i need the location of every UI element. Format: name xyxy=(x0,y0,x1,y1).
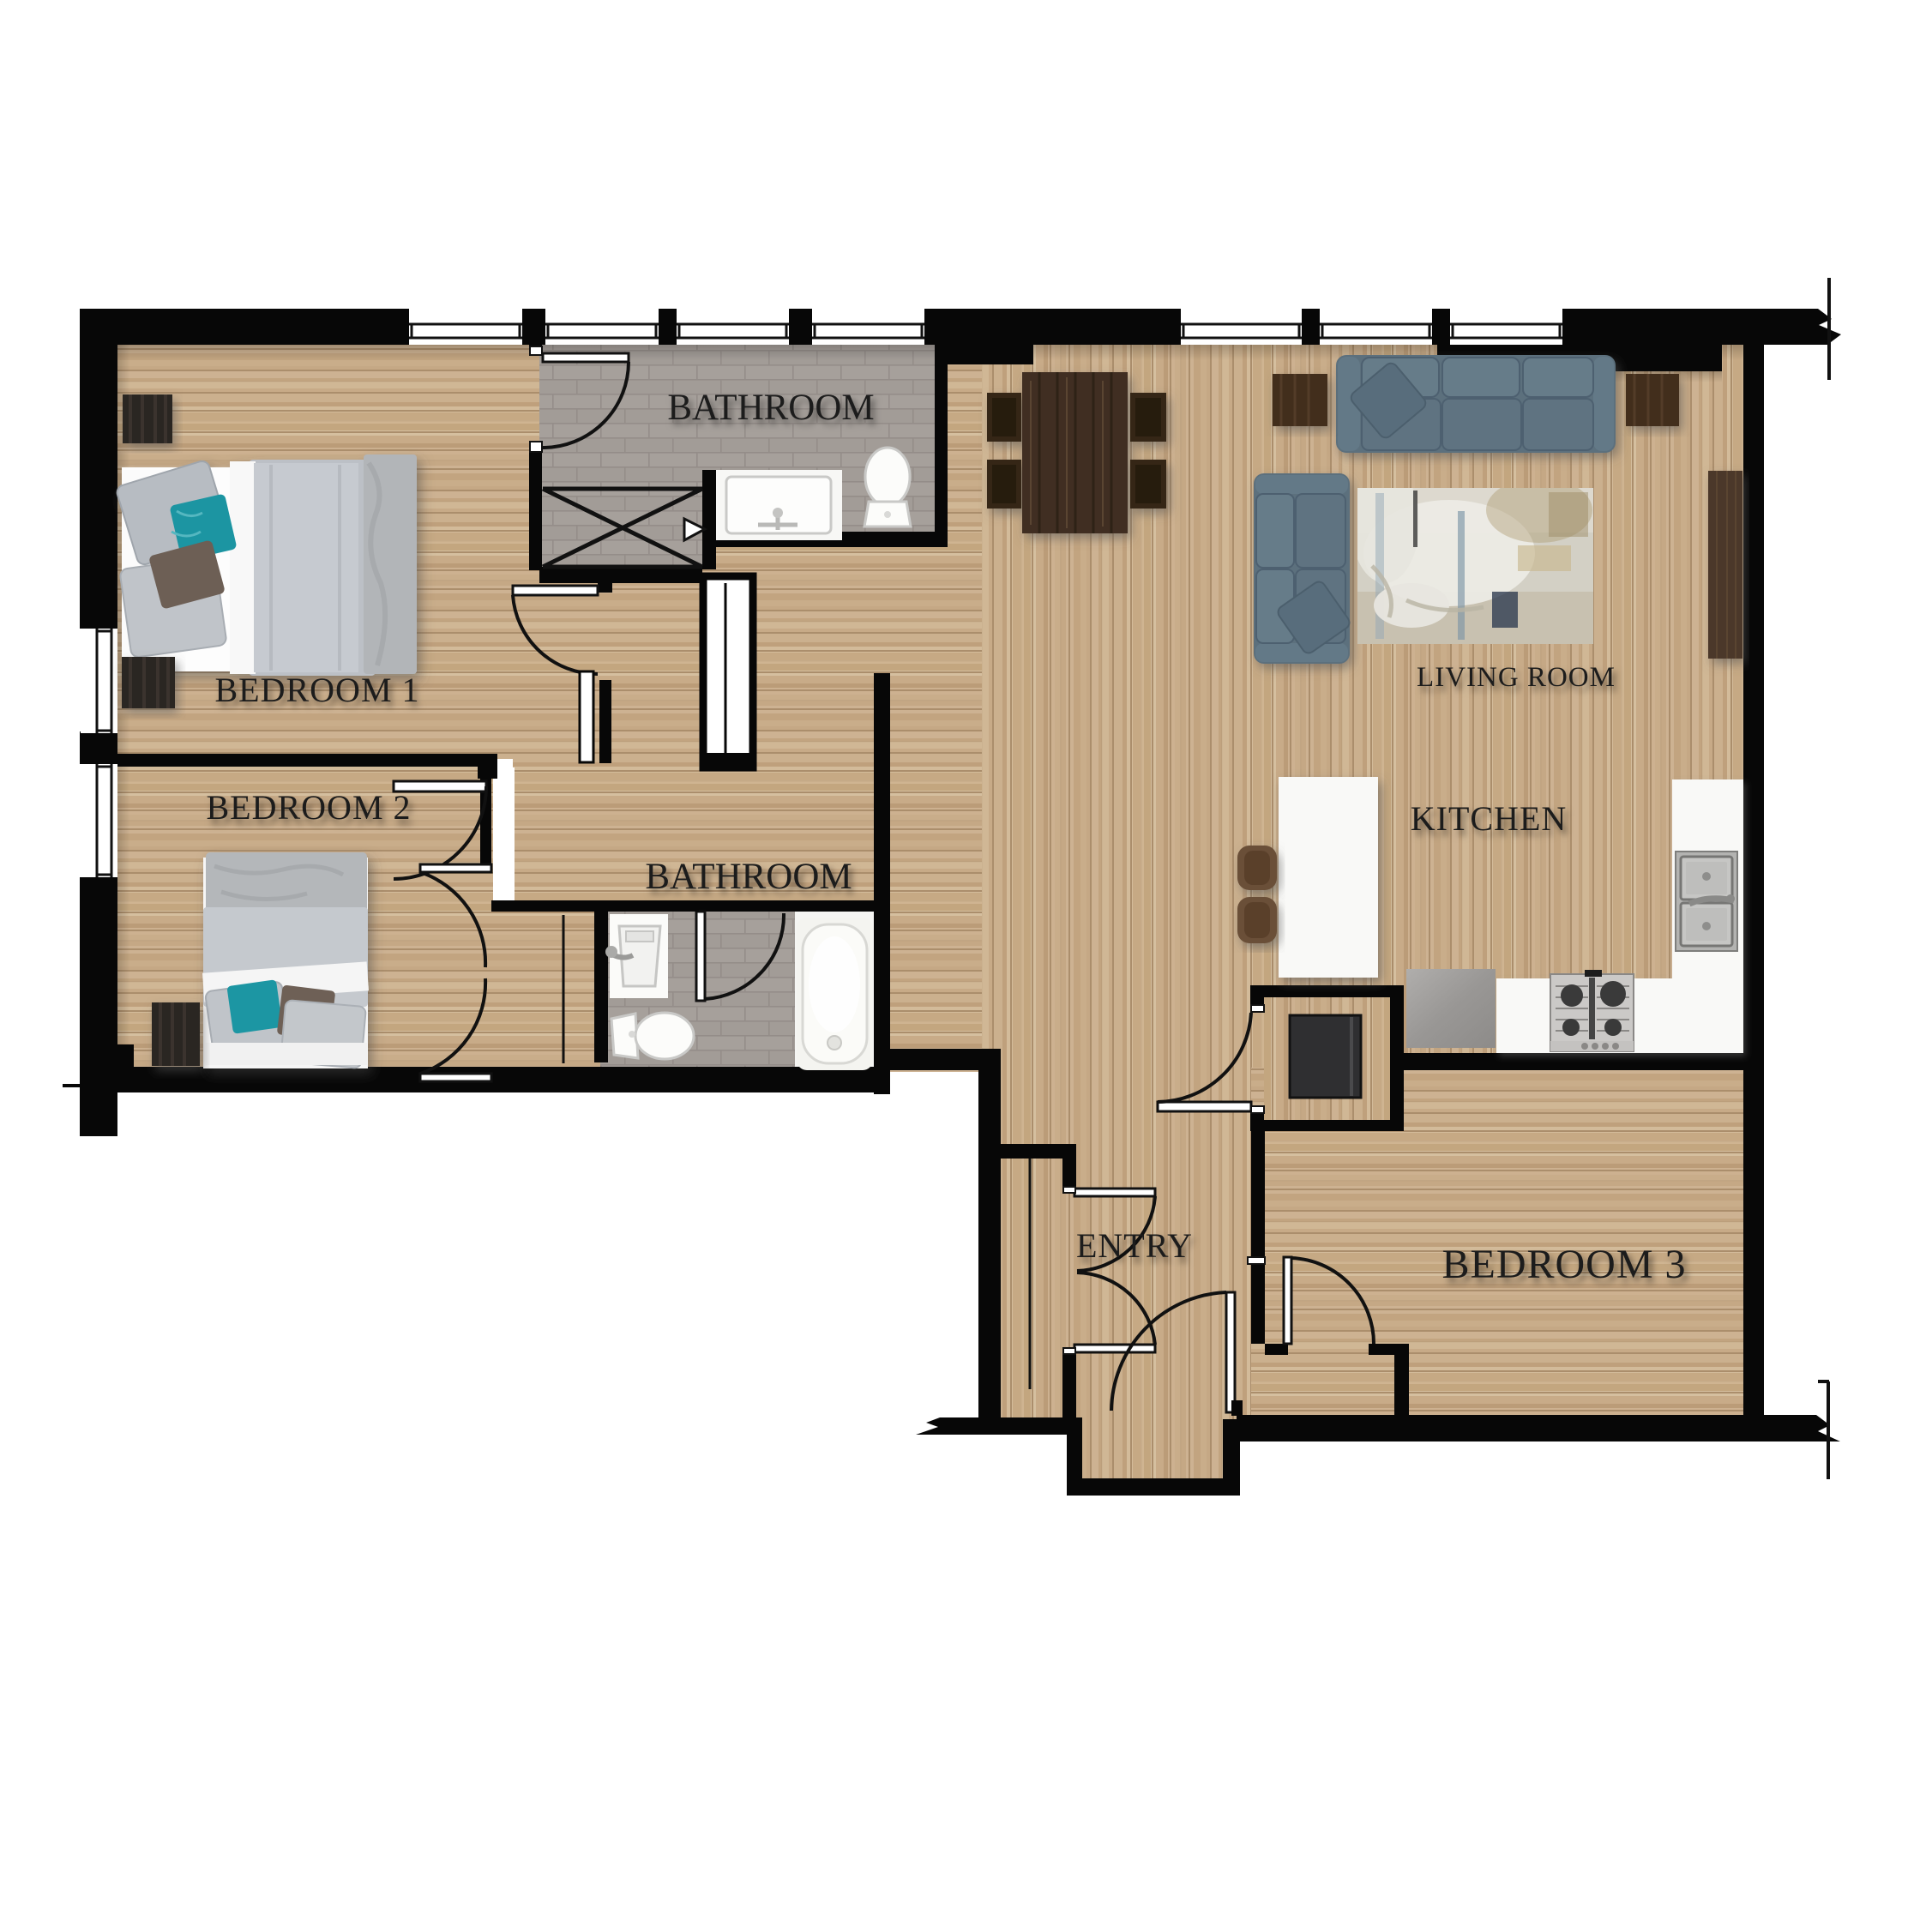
svg-text:BATHROOM: BATHROOM xyxy=(645,857,852,897)
svg-text:BEDROOM 3: BEDROOM 3 xyxy=(1441,1242,1686,1287)
svg-text:ENTRY: ENTRY xyxy=(1076,1226,1193,1265)
svg-text:LIVING ROOM: LIVING ROOM xyxy=(1417,662,1616,693)
svg-text:KITCHEN: KITCHEN xyxy=(1411,799,1568,838)
svg-text:BEDROOM 2: BEDROOM 2 xyxy=(206,788,411,827)
svg-text:BATHROOM: BATHROOM xyxy=(667,388,874,428)
svg-text:BEDROOM 1: BEDROOM 1 xyxy=(214,671,419,709)
